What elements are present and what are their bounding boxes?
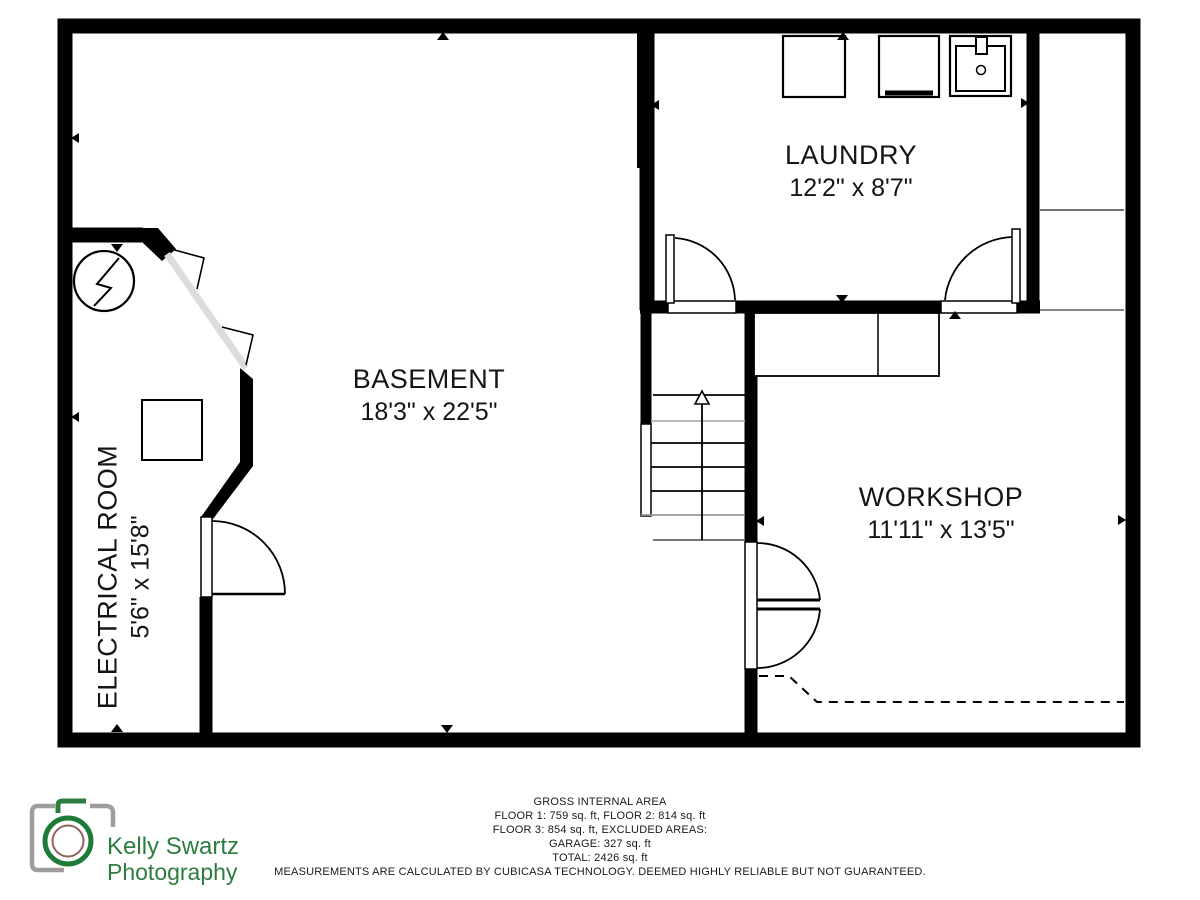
dryer-icon: [879, 36, 939, 97]
room-label-workshop: WORKSHOP 11'11" x 13'5": [859, 482, 1024, 545]
floor-plan-svg: [0, 0, 1200, 900]
room-dimensions: 12'2" x 8'7": [785, 174, 917, 203]
door-arc-icon: [941, 229, 1020, 313]
laundry-appliances: [783, 36, 1011, 97]
room-dimensions: 5'6" x 15'8": [127, 445, 156, 710]
area-summary-title: GROSS INTERNAL AREA: [0, 795, 1200, 809]
wall-marker-icon: [111, 724, 123, 732]
wall-marker-icon: [111, 244, 123, 252]
doors: [201, 229, 1020, 669]
door-arc-icon: [201, 517, 285, 597]
logo-name-line1: Kelly Swartz: [107, 835, 239, 859]
interior-walls: [65, 26, 1040, 740]
room-label-electrical-room: ELECTRICAL ROOM 5'6" x 15'8": [93, 445, 156, 710]
room-name: BASEMENT: [353, 364, 506, 395]
electrical-panel-icon: [74, 251, 134, 311]
bulkhead-dashed-line: [759, 676, 1124, 702]
area-summary-line: FLOOR 1: 759 sq. ft, FLOOR 2: 814 sq. ft: [0, 809, 1200, 823]
logo-text: Kelly Swartz Photography: [107, 835, 239, 884]
wall-marker-icon: [1118, 515, 1126, 525]
room-name: ELECTRICAL ROOM: [93, 445, 124, 710]
closet-shelves: [1040, 210, 1124, 310]
double-door-icon: [745, 542, 820, 669]
floorplan-page: BASEMENT 18'3" x 22'5" LAUNDRY 12'2" x 8…: [0, 0, 1200, 900]
staircase: [641, 391, 745, 540]
room-dimensions: 11'11" x 13'5": [859, 516, 1024, 545]
room-dimensions: 18'3" x 22'5": [353, 398, 506, 427]
wall-marker-icon: [441, 725, 453, 733]
utility-sink-icon: [950, 36, 1011, 96]
wall-markers: [71, 32, 1126, 733]
door-arc-icon: [666, 235, 736, 313]
faucet-icon: [976, 37, 987, 54]
workshop-counter: [754, 313, 939, 376]
outer-walls: [65, 26, 1133, 740]
logo-name-line2: Photography: [107, 861, 239, 884]
room-label-basement: BASEMENT 18'3" x 22'5": [353, 364, 506, 427]
drain-icon: [977, 66, 986, 75]
washer-icon: [783, 36, 845, 97]
stairs-up-arrow-icon: [695, 391, 709, 540]
room-name: WORKSHOP: [859, 482, 1024, 513]
room-label-laundry: LAUNDRY 12'2" x 8'7": [785, 140, 917, 203]
room-name: LAUNDRY: [785, 140, 917, 171]
ghost-wall-opening: [167, 249, 253, 368]
